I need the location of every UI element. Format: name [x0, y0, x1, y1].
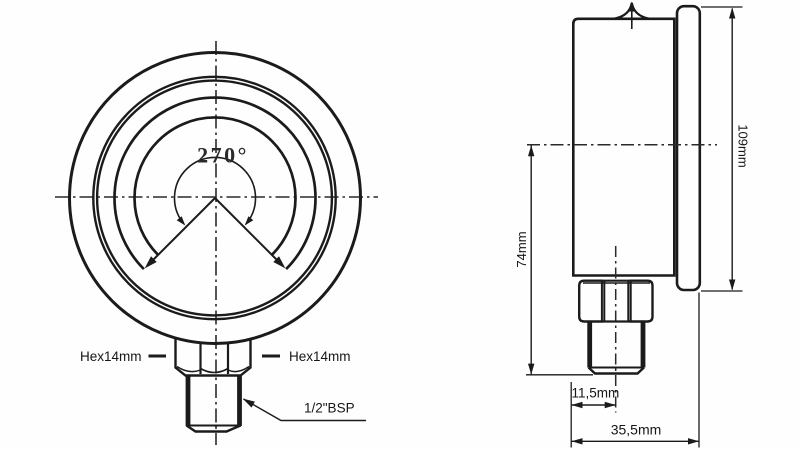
- svg-text:35,5mm: 35,5mm: [611, 422, 662, 438]
- svg-text:1/2"BSP: 1/2"BSP: [304, 401, 355, 416]
- svg-text:11,5mm: 11,5mm: [572, 386, 620, 401]
- svg-text:Hex14mm: Hex14mm: [289, 349, 351, 364]
- svg-text:Hex14mm: Hex14mm: [80, 349, 142, 364]
- svg-text:109mm: 109mm: [736, 124, 751, 167]
- svg-text:74mm: 74mm: [514, 231, 529, 267]
- svg-text:270°: 270°: [197, 143, 249, 168]
